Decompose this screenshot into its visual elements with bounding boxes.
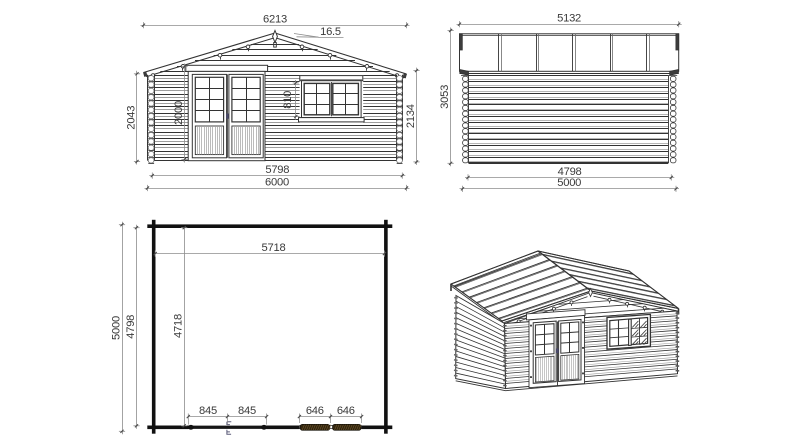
- svg-text:5798: 5798: [265, 164, 289, 176]
- svg-text:4798: 4798: [558, 166, 582, 178]
- svg-text:810: 810: [282, 91, 294, 109]
- svg-text:4718: 4718: [173, 314, 185, 338]
- svg-text:2000: 2000: [173, 101, 185, 125]
- svg-text:16.5: 16.5: [320, 26, 341, 38]
- svg-text:5000: 5000: [111, 316, 123, 340]
- svg-text:4798: 4798: [125, 315, 137, 339]
- svg-text:2043: 2043: [125, 106, 137, 130]
- svg-text:5132: 5132: [557, 13, 581, 25]
- svg-text:646: 646: [306, 405, 324, 417]
- svg-text:5718: 5718: [262, 242, 286, 254]
- svg-text:646: 646: [337, 405, 355, 417]
- svg-text:5000: 5000: [557, 177, 581, 189]
- svg-text:6000: 6000: [265, 176, 289, 188]
- svg-text:6213: 6213: [263, 14, 287, 26]
- svg-text:845: 845: [199, 405, 217, 417]
- svg-text:3053: 3053: [439, 85, 451, 109]
- svg-text:845: 845: [238, 405, 256, 417]
- svg-text:2134: 2134: [405, 104, 417, 128]
